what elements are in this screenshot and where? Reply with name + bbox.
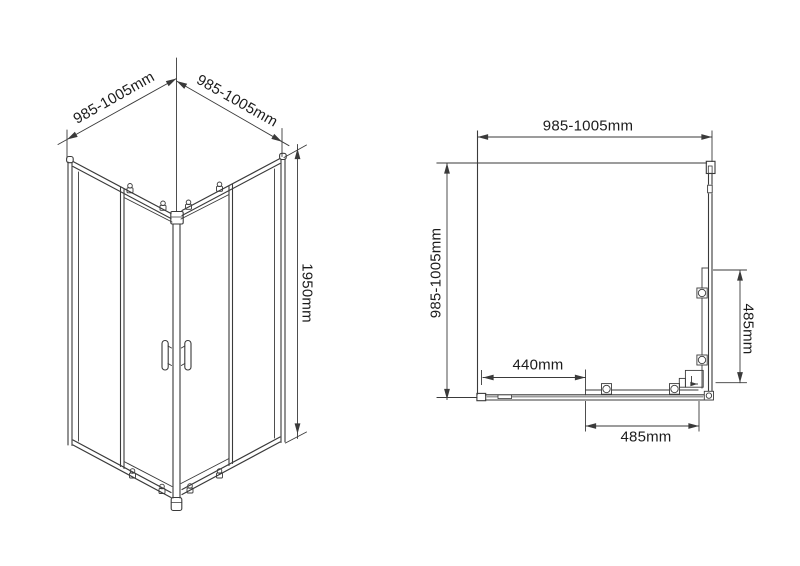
roller [697,288,707,298]
plan-dim-side-panel-label: 485mm [740,303,757,354]
slide-direction-arrow [692,377,698,385]
roller [670,384,680,395]
right-door-handle [181,341,191,371]
extension-line [284,145,307,158]
iso-dim-height-label: 1950mm [299,263,316,323]
technical-drawing: 985-1005mm 985-1005mm 1950mm 985-1005mm … [0,0,800,566]
plan-right-panel [697,161,715,399]
plan-dim-opening-label: 440mm [512,357,563,374]
extension-line [286,432,307,443]
door-handles [162,341,191,371]
plan-walls [437,131,712,394]
plan-dim-width-label: 985-1005mm [543,118,633,135]
roller [217,469,223,478]
iso-left-wall [67,157,172,498]
iso-corner-post [171,212,183,511]
plan-bottom-panel [477,370,714,400]
iso-rollers [127,182,223,494]
plan-dim-depth-label: 985-1005mm [428,228,445,318]
roller [697,355,707,365]
plan-view [437,131,747,431]
plan-dim-bottom-panel-label: 485mm [620,429,671,446]
left-door-handle [162,341,172,371]
roller [602,384,612,395]
iso-right-wall [181,153,286,494]
